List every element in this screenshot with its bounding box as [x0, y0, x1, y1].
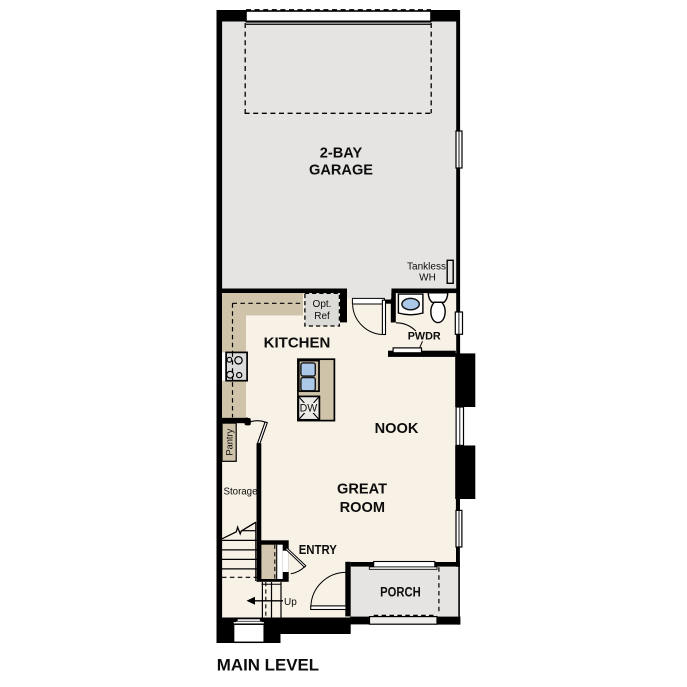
svg-text:Up: Up	[284, 597, 297, 608]
svg-text:KITCHEN: KITCHEN	[264, 334, 331, 351]
svg-text:NOOK: NOOK	[375, 421, 419, 437]
svg-text:PWDR: PWDR	[408, 331, 441, 343]
svg-text:ENTRY: ENTRY	[299, 543, 338, 557]
svg-text:MAIN LEVEL: MAIN LEVEL	[217, 655, 319, 674]
svg-text:PORCH: PORCH	[380, 585, 421, 600]
svg-text:Pantry: Pantry	[225, 428, 235, 455]
svg-text:2-BAY: 2-BAY	[320, 145, 363, 161]
svg-text:GREAT: GREAT	[337, 482, 387, 498]
svg-text:Ref: Ref	[314, 311, 330, 322]
svg-text:Storage: Storage	[224, 487, 258, 498]
svg-text:DW: DW	[300, 403, 318, 415]
svg-text:ROOM: ROOM	[340, 500, 385, 516]
svg-text:WH: WH	[419, 272, 436, 283]
svg-text:Opt.: Opt.	[313, 299, 332, 310]
svg-text:GARAGE: GARAGE	[309, 163, 373, 179]
svg-text:Tankless: Tankless	[407, 261, 446, 272]
